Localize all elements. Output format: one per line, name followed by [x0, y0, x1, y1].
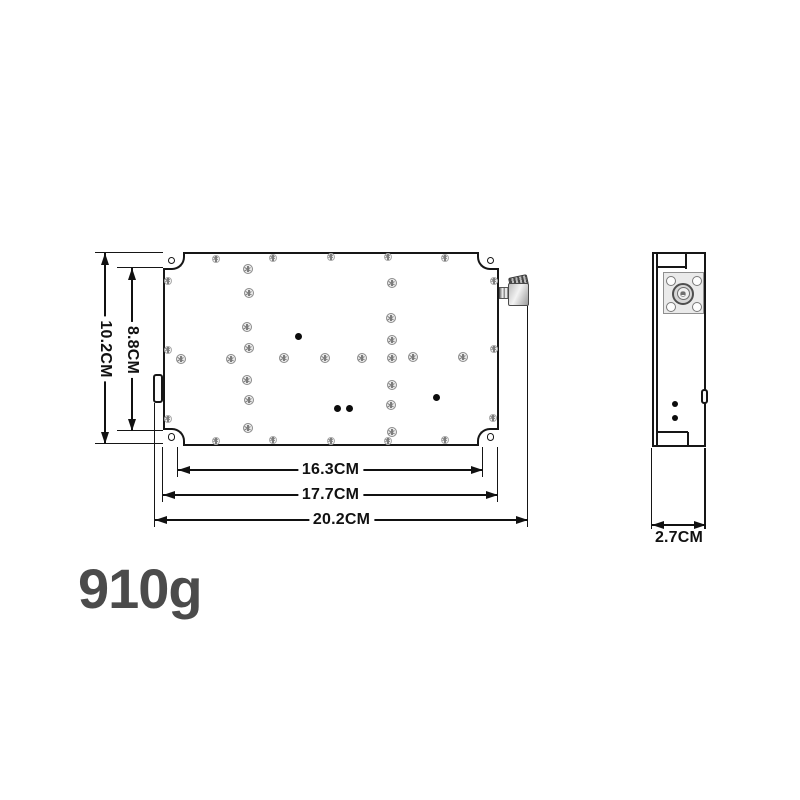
dimension-10.2CM: 10.2CM [96, 253, 114, 444]
mounting-hole [168, 433, 176, 441]
side-notch [701, 389, 708, 404]
screw-icon [212, 255, 220, 263]
dimension-label: 10.2CM [96, 316, 114, 381]
side-view-edge-line [657, 266, 686, 268]
dimension-arrowhead [178, 466, 190, 474]
screw-icon [441, 254, 449, 262]
flange-screw-hole [666, 302, 676, 312]
extension-line [527, 306, 529, 527]
dimension-arrowhead [101, 432, 109, 444]
side-view-edge-line [657, 431, 688, 433]
side-view-edge-line [656, 252, 658, 447]
screw-icon [226, 354, 236, 364]
screw-icon [327, 253, 335, 261]
dimension-17.7CM: 17.7CM [163, 486, 498, 504]
side-tab [153, 374, 163, 403]
screw-icon [384, 437, 392, 445]
screw-icon [387, 380, 397, 390]
rf-connector-front [508, 283, 529, 306]
screw-icon [387, 278, 397, 288]
dimension-arrowhead [694, 521, 706, 529]
mounting-hole [487, 433, 495, 441]
screw-icon [408, 352, 418, 362]
dot-marker [295, 333, 302, 340]
screw-icon [176, 354, 186, 364]
screw-icon [490, 345, 498, 353]
dimension-arrowhead [471, 466, 483, 474]
side-view-edge-line [687, 432, 689, 447]
flange-screw-hole [666, 276, 676, 286]
dimension-arrowhead [128, 419, 136, 431]
screw-icon [164, 415, 172, 423]
screw-icon [357, 353, 367, 363]
screw-icon [244, 395, 254, 405]
screw-icon [386, 313, 396, 323]
screw-icon [212, 437, 220, 445]
screw-icon [387, 353, 397, 363]
dimension-arrowhead [516, 516, 528, 524]
screw-icon [242, 322, 252, 332]
technical-drawing-canvas: 910g 10.2CM8.8CM16.3CM17.7CM20.2CM2.7CM [0, 0, 800, 800]
screw-icon [320, 353, 330, 363]
screw-icon [244, 343, 254, 353]
screw-icon [441, 436, 449, 444]
screw-icon [387, 427, 397, 437]
dimension-label: 17.7CM [298, 486, 363, 504]
screw-icon [279, 353, 289, 363]
weight-label: 910g [78, 556, 202, 621]
screw-icon [458, 352, 468, 362]
dot-marker [334, 405, 341, 412]
dimension-20.2CM: 20.2CM [155, 511, 528, 529]
screw-icon [164, 277, 172, 285]
dimension-16.3CM: 16.3CM [178, 461, 483, 479]
dimension-label: 8.8CM [123, 321, 141, 377]
dimension-2.7CM: 2.7CM [652, 516, 706, 534]
dimension-arrowhead [163, 491, 175, 499]
screw-icon [243, 423, 253, 433]
dimension-label: 20.2CM [309, 511, 374, 529]
dimension-arrowhead [128, 268, 136, 280]
dimension-8.8CM: 8.8CM [123, 268, 141, 431]
dimension-label: 2.7CM [651, 529, 707, 547]
screw-icon [384, 253, 392, 261]
flange-screw-hole [692, 276, 702, 286]
dimension-arrowhead [486, 491, 498, 499]
screw-icon [242, 375, 252, 385]
screw-icon [386, 400, 396, 410]
dot-marker [433, 394, 440, 401]
screw-icon [269, 436, 277, 444]
extension-line [154, 403, 156, 527]
screw-icon [243, 264, 253, 274]
side-view-edge-line [685, 252, 687, 269]
screw-icon [327, 437, 335, 445]
screw-icon [269, 254, 277, 262]
screw-icon [489, 414, 497, 422]
screw-icon [490, 277, 498, 285]
dimension-arrowhead [155, 516, 167, 524]
front-view-body [163, 252, 499, 446]
flange-screw-hole [692, 302, 702, 312]
screw-icon [387, 335, 397, 345]
dimension-arrowhead [652, 521, 664, 529]
screw-icon [164, 346, 172, 354]
dot-marker [346, 405, 353, 412]
dimension-arrowhead [101, 253, 109, 265]
dimension-label: 16.3CM [298, 461, 363, 479]
connector-center-pin [681, 292, 685, 296]
screw-icon [244, 288, 254, 298]
